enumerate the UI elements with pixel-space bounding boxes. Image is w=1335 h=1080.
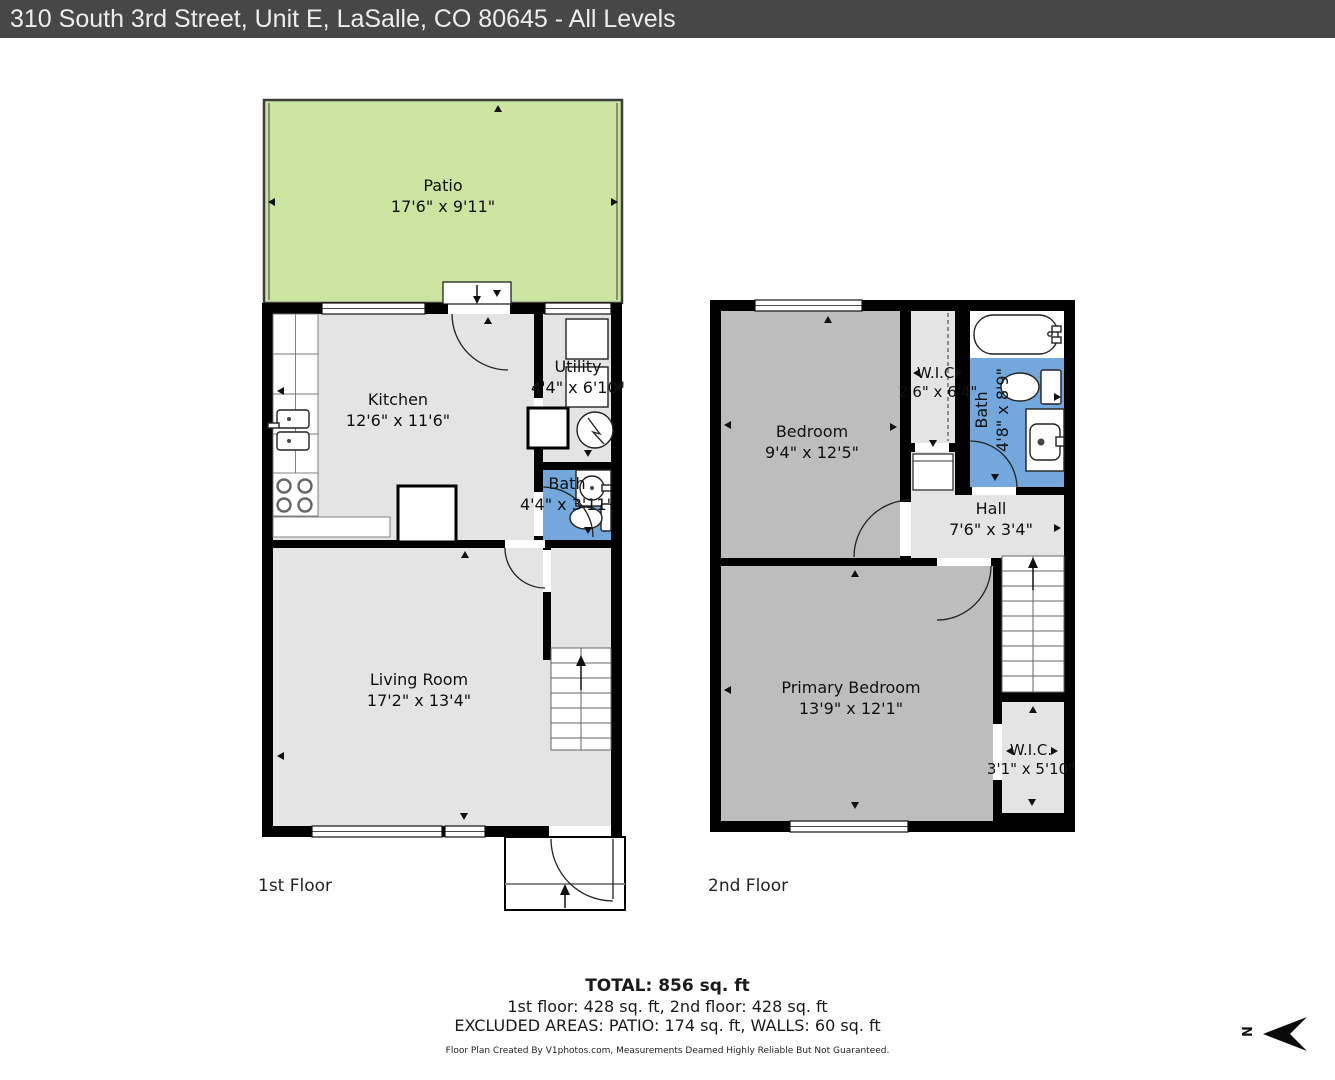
living-room-label: Living Room 17'2" x 13'4": [367, 669, 471, 711]
room-dims: 3'1" x 5'10": [987, 760, 1075, 779]
room-name: Living Room: [367, 669, 471, 690]
room-dims: 17'2" x 13'4": [367, 690, 471, 711]
vanity-sink-icon: [1026, 409, 1064, 471]
kitchen-label: Kitchen 12'6" x 11'6": [346, 389, 450, 431]
room-name: W.I.C.: [987, 741, 1075, 760]
room-name: Hall: [949, 498, 1033, 519]
bedroom-label: Bedroom 9'4" x 12'5": [765, 421, 859, 463]
room-name: Bath: [520, 473, 614, 494]
window: [312, 826, 611, 837]
north-label: N: [1241, 1026, 1256, 1037]
pantry-cabinet: [398, 486, 456, 542]
floorplan-page: 310 South 3rd Street, Unit E, LaSalle, C…: [0, 0, 1335, 1080]
primary-bedroom-label: Primary Bedroom 13'9" x 12'1": [781, 677, 920, 719]
room-dims: 13'9" x 12'1": [781, 698, 920, 719]
stairs-first-floor: [551, 648, 611, 750]
wic-bottom-label: W.I.C. 3'1" x 5'10": [987, 741, 1075, 779]
stove-icon: [273, 473, 318, 516]
second-floor-caption: 2nd Floor: [708, 876, 788, 896]
washer-icon: [566, 319, 608, 359]
room-name: W.I.C.: [899, 364, 978, 383]
room-dims: 7'6" x 3'4": [949, 519, 1033, 540]
room-dims: 4'4" x 6'10": [531, 377, 625, 398]
room-dims: 4'4" x 3'11": [520, 494, 614, 515]
bath2-label: Bath 4'8" x 8'9": [971, 368, 1013, 452]
room-name: Kitchen: [346, 389, 450, 410]
total-area-text: TOTAL: 856 sq. ft: [585, 976, 750, 996]
stairs-second-floor: [1002, 556, 1064, 692]
room-dims: 4'8" x 8'9": [992, 368, 1013, 452]
utility-label: Utility 4'4" x 6'10": [531, 356, 625, 398]
closet-1: [528, 408, 568, 448]
first-floor-caption: 1st Floor: [258, 876, 332, 896]
room-name: Primary Bedroom: [781, 677, 920, 698]
excluded-areas-text: EXCLUDED AREAS: PATIO: 174 sq. ft, WALLS…: [454, 1016, 880, 1035]
bath1-label: Bath 4'4" x 3'11": [520, 473, 614, 515]
patio-label: Patio 17'6" x 9'11": [391, 175, 495, 217]
floor-areas-text: 1st floor: 428 sq. ft, 2nd floor: 428 sq…: [507, 997, 827, 1016]
hall-label: Hall 7'6" x 3'4": [949, 498, 1033, 540]
entry-porch: [505, 837, 625, 910]
linen-closet: [913, 454, 953, 490]
north-arrow-icon: [1263, 1017, 1307, 1051]
floorplan-drawing: [0, 0, 1335, 1080]
room-dims: 2'6" x 6'4": [899, 383, 978, 402]
room-dims: 9'4" x 12'5": [765, 442, 859, 463]
room-name: Utility: [531, 356, 625, 377]
patio-door: [443, 282, 511, 304]
room-dims: 12'6" x 11'6": [346, 410, 450, 431]
credit-text: Floor Plan Created By V1photos.com, Meas…: [446, 1046, 890, 1056]
room-name: Bath: [971, 368, 992, 452]
room-name: Patio: [391, 175, 495, 196]
room-dims: 17'6" x 9'11": [391, 196, 495, 217]
water-heater-icon: [577, 412, 613, 448]
window: [322, 303, 611, 314]
room-name: Bedroom: [765, 421, 859, 442]
wic-top-label: W.I.C. 2'6" x 6'4": [899, 364, 978, 402]
bathtub-icon: [974, 315, 1061, 354]
